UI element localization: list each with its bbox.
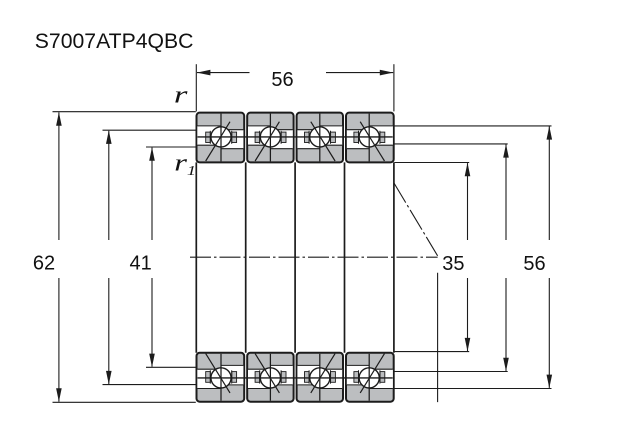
- svg-text:35: 35: [442, 253, 464, 275]
- svg-text:41: 41: [129, 252, 151, 274]
- svg-text:56: 56: [523, 253, 545, 275]
- svg-text:56: 56: [271, 69, 293, 91]
- svg-text:r: r: [174, 81, 188, 107]
- svg-text:S7007ATP4QBC: S7007ATP4QBC: [35, 30, 194, 53]
- svg-text:62: 62: [33, 252, 55, 274]
